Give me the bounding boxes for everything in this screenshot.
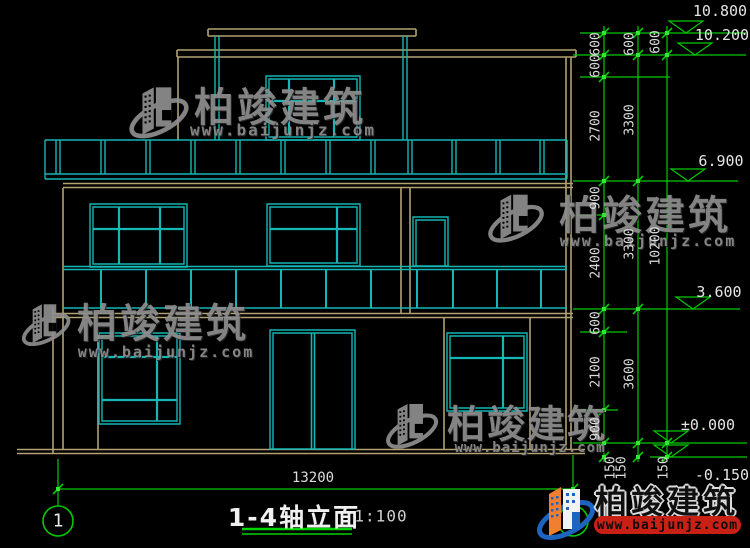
dim-label: 10200: [649, 226, 664, 265]
footer-url-text: www.baijunjz.com: [597, 518, 738, 533]
elevation-label: 10.200: [695, 26, 749, 44]
elevation-label: 6.900: [698, 152, 743, 170]
drawing-title: 1-4轴立面: [228, 498, 360, 534]
brand-building-icon: [384, 404, 441, 453]
watermark-url: www.baijunjz.com: [455, 440, 606, 456]
dim-label: 2400: [589, 247, 604, 278]
brand-building-icon: [20, 304, 73, 350]
dim-label: 2700: [589, 110, 604, 141]
watermark-url: www.baijunjz.com: [78, 343, 255, 361]
overall-width-dim-label: 13200: [292, 470, 334, 486]
dim-label: 600: [649, 30, 664, 53]
dim-label: 600: [623, 32, 638, 55]
dim-label: 600: [589, 32, 604, 55]
dim-label: 2100: [589, 356, 604, 387]
brand-logo-icon: [536, 476, 600, 548]
dim-label: 600: [589, 54, 604, 77]
dim-label: 900: [589, 417, 604, 440]
dim-label: 600: [589, 311, 604, 334]
dim-label: 900: [589, 186, 604, 209]
brand-building-icon: [126, 87, 191, 143]
watermark-url: www.baijunjz.com: [190, 121, 376, 140]
scale-label: 1:100: [354, 507, 407, 526]
watermark-brand: 柏竣建筑: [77, 291, 249, 349]
dim-label: 3300: [623, 104, 638, 135]
dim-label: 3300: [623, 228, 638, 259]
dim-label: 3600: [623, 358, 638, 389]
elevation-drawing: [0, 0, 750, 548]
axis-bubble-label: 1: [53, 511, 64, 532]
elevation-label: 3.600: [696, 283, 741, 301]
cad-viewer-canvas: 柏竣建筑 www.baijunjz.com 柏竣建筑 www.baijunjz.…: [0, 0, 750, 548]
elevation-label: ±0.000: [681, 416, 735, 434]
brand-building-icon: [486, 195, 547, 248]
elevation-label: 10.800: [693, 2, 747, 20]
footer-url-bar: www.baijunjz.com: [594, 516, 741, 534]
